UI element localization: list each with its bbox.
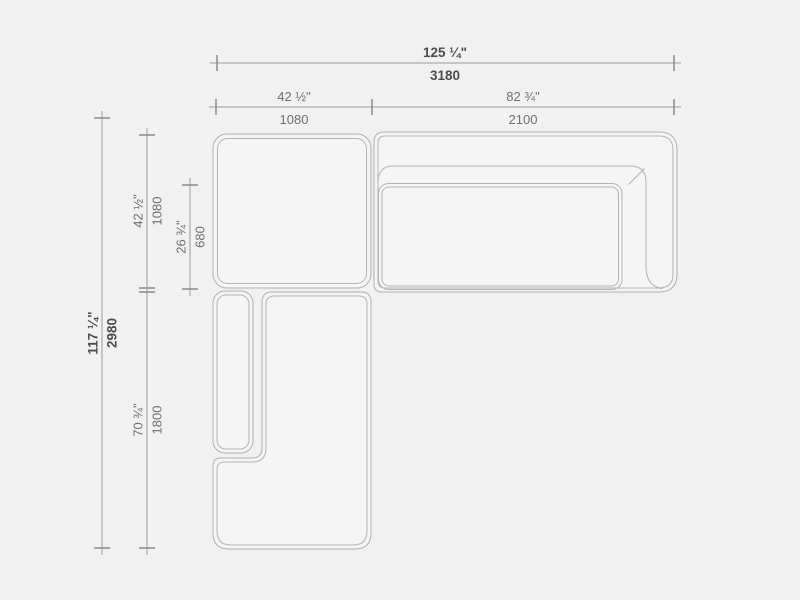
top-module-depth-mm-label: 1080	[150, 197, 165, 226]
overall-width-mm-label: 3180	[430, 68, 460, 83]
right-sofa-module	[374, 132, 677, 292]
chaise-armrest-outer-edge	[213, 291, 253, 453]
left-front-width-inches-label: 42 ½"	[277, 89, 311, 104]
right-sofa-outer-edge	[374, 132, 677, 292]
overall-width-inches-label: 125 ¼"	[423, 45, 467, 60]
overall-depth-inches-label: 117 ¼"	[86, 311, 101, 354]
sofa-plan-drawing: 125 ¼" 3180 42 ½" 1080 82 ¾" 2100 117 ¼"…	[0, 0, 800, 600]
chaise-module	[213, 291, 371, 549]
dimension-drawing-canvas: 125 ¼" 3180 42 ½" 1080 82 ¾" 2100 117 ¼"…	[0, 0, 800, 600]
furniture-outlines	[213, 132, 677, 549]
corner-module-outer-edge	[213, 134, 371, 288]
left-front-width-mm-label: 1080	[280, 112, 309, 127]
seat-depth-inches-label: 26 ¾"	[174, 220, 189, 254]
chaise-length-inches-label: 70 ¾"	[131, 403, 146, 437]
seat-depth-mm-label: 680	[193, 226, 208, 248]
dimension-lines	[94, 55, 681, 555]
right-front-width-mm-label: 2100	[509, 112, 538, 127]
overall-depth-mm-label: 2980	[105, 318, 120, 348]
chaise-length-mm-label: 1800	[150, 406, 165, 435]
corner-module	[213, 134, 371, 288]
top-module-depth-inches-label: 42 ½"	[131, 194, 146, 228]
right-front-width-inches-label: 82 ¾"	[506, 89, 540, 104]
